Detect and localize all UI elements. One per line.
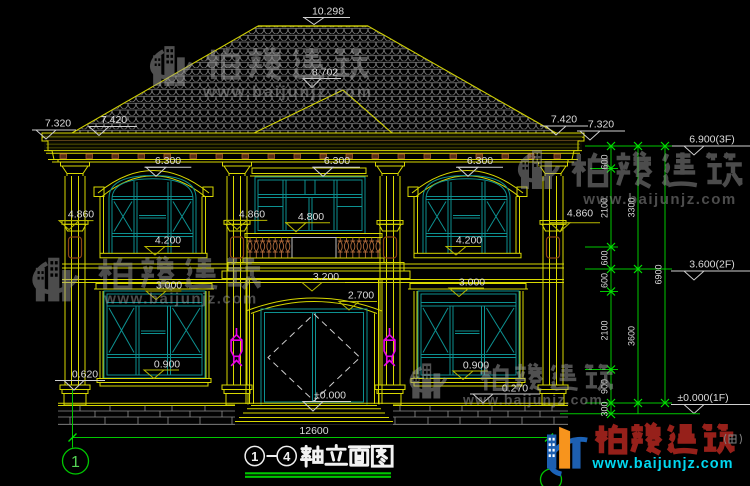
svg-text:3.000: 3.000 (459, 277, 485, 289)
svg-text:3.600(2F): 3.600(2F) (689, 259, 735, 271)
svg-text:4.860: 4.860 (239, 209, 265, 221)
svg-text:4.860: 4.860 (567, 208, 593, 220)
svg-text:0.620: 0.620 (72, 369, 98, 381)
svg-text:www.baijunjz.com: www.baijunjz.com (582, 191, 736, 208)
svg-text:12600: 12600 (299, 425, 328, 437)
svg-text:2.700: 2.700 (348, 290, 374, 302)
svg-text:4.200: 4.200 (456, 235, 482, 247)
svg-text:0.900: 0.900 (154, 359, 180, 371)
svg-text:7.320: 7.320 (588, 119, 614, 131)
svg-text:7.320: 7.320 (45, 118, 71, 130)
svg-text:6.300: 6.300 (324, 155, 350, 167)
svg-text:2100: 2100 (600, 320, 610, 340)
svg-text:www.baijunjz.com: www.baijunjz.com (591, 456, 733, 472)
svg-text:6900: 6900 (654, 264, 664, 284)
svg-text:6.300: 6.300 (155, 155, 181, 167)
svg-text:1: 1 (251, 449, 258, 464)
svg-text:7.420: 7.420 (101, 114, 127, 126)
svg-text:±0.000(1F): ±0.000(1F) (677, 392, 728, 404)
svg-text:6.900(3F): 6.900(3F) (689, 134, 735, 146)
svg-text:600: 600 (600, 250, 610, 265)
svg-text:1: 1 (71, 454, 80, 471)
svg-text:600: 600 (600, 273, 610, 288)
svg-text:4.860: 4.860 (68, 209, 94, 221)
svg-text:4.200: 4.200 (155, 235, 181, 247)
svg-text:3.200: 3.200 (313, 271, 339, 283)
svg-text:www.baijunjz.com: www.baijunjz.com (462, 392, 603, 408)
svg-text:7.420: 7.420 (551, 114, 577, 126)
svg-text:6.300: 6.300 (467, 155, 493, 167)
svg-text:3600: 3600 (627, 326, 637, 346)
svg-text:4.800: 4.800 (298, 211, 324, 223)
svg-text:4: 4 (283, 449, 291, 464)
svg-text:±0.000: ±0.000 (314, 390, 346, 402)
svg-text:10.298: 10.298 (312, 6, 344, 18)
svg-text:www.baijunjz.com: www.baijunjz.com (103, 291, 257, 308)
svg-text:www.baijunjz.com: www.baijunjz.com (202, 84, 373, 101)
